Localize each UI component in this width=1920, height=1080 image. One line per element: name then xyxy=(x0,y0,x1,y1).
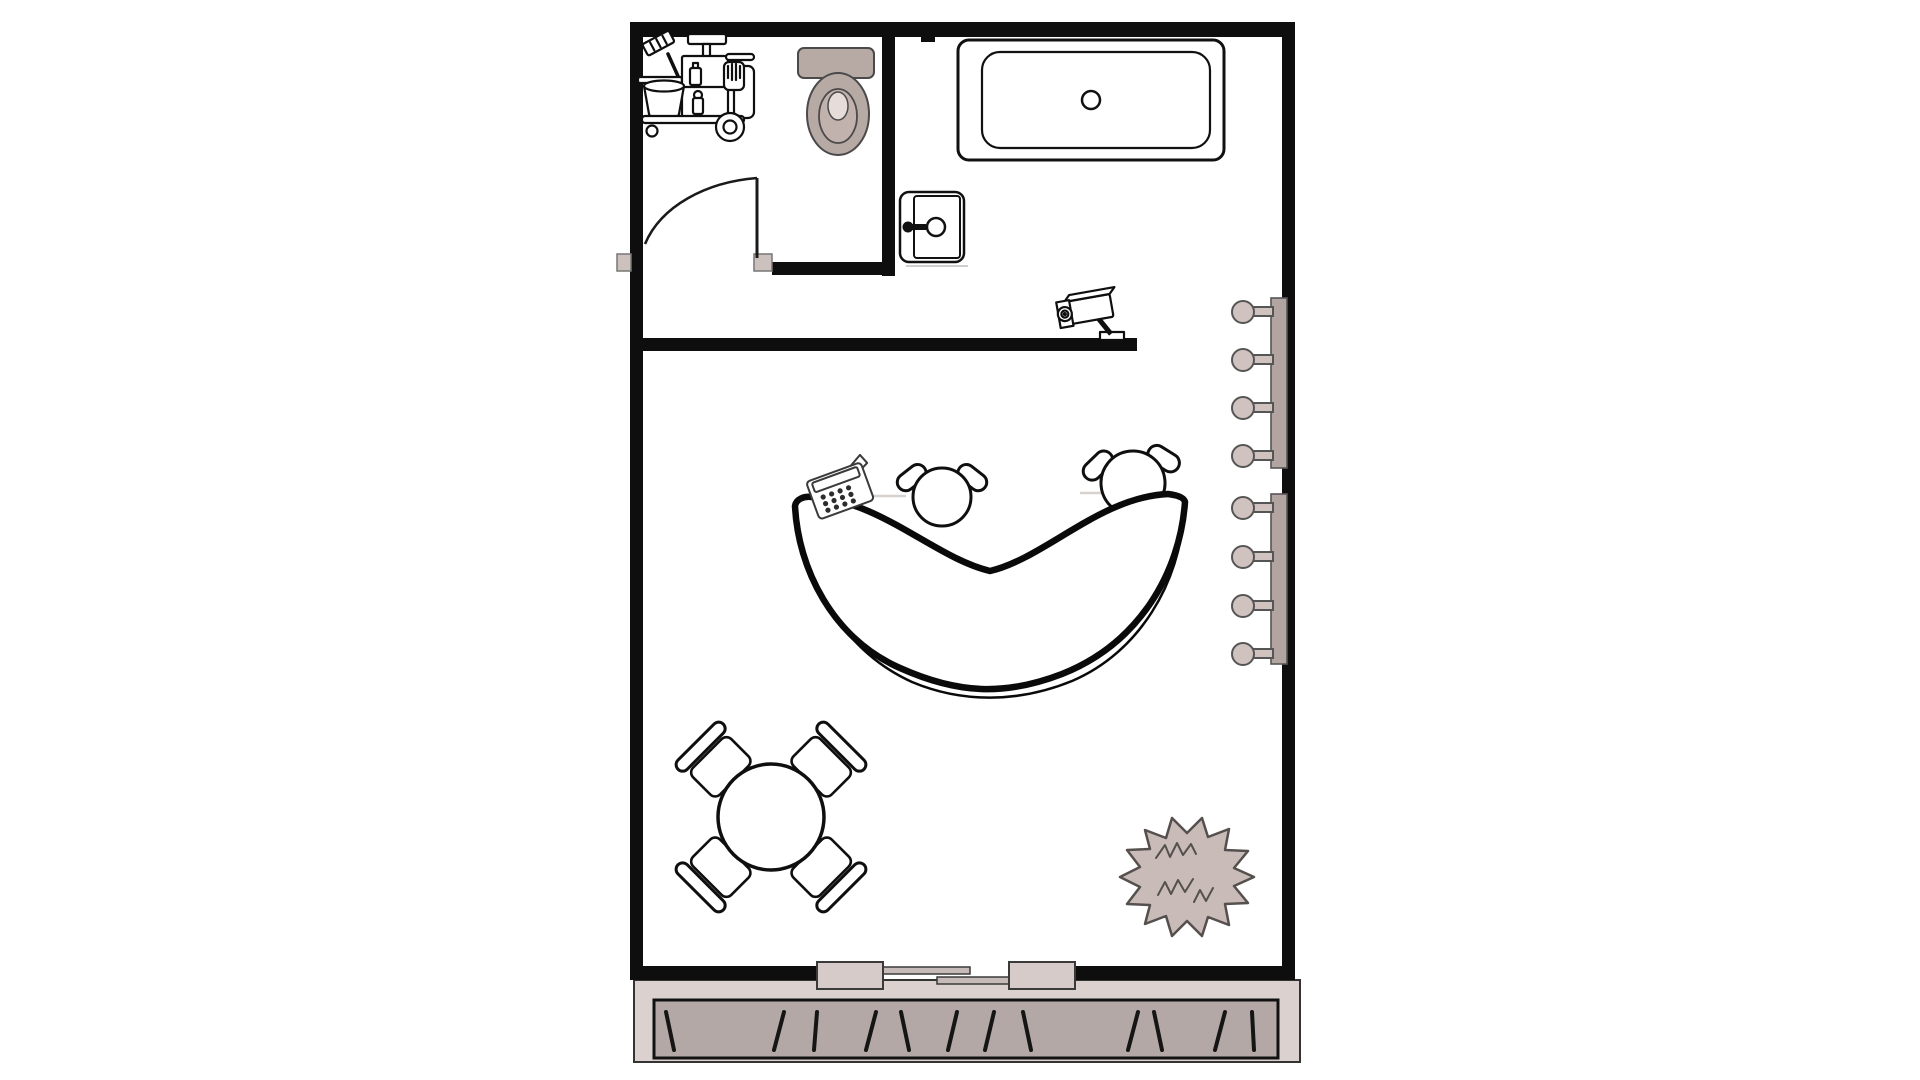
coat-rack-bar xyxy=(1271,298,1287,468)
interior-partition-wall xyxy=(643,338,1137,351)
desk-countertop xyxy=(795,494,1185,689)
spray-bottle xyxy=(690,68,701,85)
door-post-outside xyxy=(617,254,631,271)
toilet-lid-center xyxy=(828,92,848,120)
sliding-door-panel-left xyxy=(817,962,883,989)
cart-push-handle xyxy=(688,34,726,44)
utility-room-bottom-wall xyxy=(772,262,895,275)
wall-bottom-left xyxy=(643,966,820,980)
bathtub-icon[interactable] xyxy=(958,40,1224,160)
safe-icon[interactable] xyxy=(900,192,968,266)
office-chair-1[interactable] xyxy=(894,461,990,526)
wall-left xyxy=(630,22,643,980)
reception-desk[interactable] xyxy=(795,494,1185,698)
floorplan-page xyxy=(0,0,1920,1080)
utility-room-right-wall xyxy=(882,36,895,276)
camera-mount-foot xyxy=(1100,332,1124,340)
wall-bottom-right xyxy=(1075,966,1282,980)
wall-stub-tick xyxy=(921,36,935,42)
bathtub-drain xyxy=(1082,91,1100,109)
toilet-icon[interactable] xyxy=(798,48,874,155)
coat-rack-upper[interactable] xyxy=(1232,298,1287,468)
entrance-mat-surface xyxy=(654,1000,1278,1058)
chair-seat xyxy=(913,468,971,526)
round-table[interactable] xyxy=(718,764,824,870)
safe-dial-knob xyxy=(927,218,945,236)
safe-hinge-knuckle xyxy=(903,222,914,233)
wall-top xyxy=(630,22,1295,37)
sliding-door-panel-right xyxy=(1009,962,1075,989)
plant-foliage xyxy=(1120,818,1254,936)
floorplan-canvas xyxy=(0,0,1920,1080)
coat-hooks xyxy=(1232,301,1273,467)
plant-icon[interactable] xyxy=(1120,818,1254,936)
cleaning-cart-icon[interactable] xyxy=(638,30,754,141)
cart-caster-wheel xyxy=(647,126,658,137)
swing-door[interactable] xyxy=(645,178,757,258)
entrance-mat xyxy=(634,980,1300,1062)
bottle xyxy=(693,98,703,114)
table-set xyxy=(673,719,868,914)
door-swing-arc xyxy=(645,178,757,244)
coat-rack-lower[interactable] xyxy=(1232,494,1287,665)
camera-lens-dot xyxy=(1064,313,1066,315)
security-camera-icon[interactable] xyxy=(1055,287,1124,340)
coat-hooks xyxy=(1232,497,1273,665)
cart-side-rail-right xyxy=(726,54,754,60)
cart-big-wheel-hub xyxy=(724,121,737,134)
sliding-rail-left xyxy=(880,967,970,974)
coat-rack-bar xyxy=(1271,494,1287,664)
bucket-rim xyxy=(644,81,684,92)
